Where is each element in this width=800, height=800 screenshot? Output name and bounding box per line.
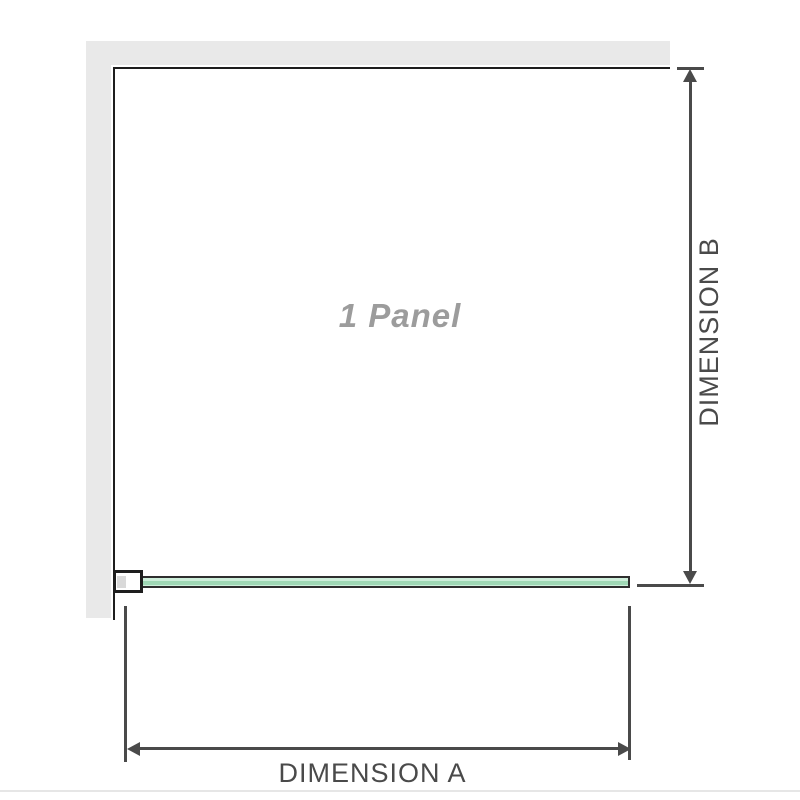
dimension-b-line bbox=[689, 74, 692, 579]
bottom-separator-line bbox=[0, 790, 800, 792]
wall-left bbox=[86, 41, 111, 618]
dimension-b-tick-bottom bbox=[637, 584, 704, 587]
dimension-b-label: DIMENSION B bbox=[695, 217, 723, 447]
panel-count-label: 1 Panel bbox=[290, 297, 510, 335]
dimension-a-label: DIMENSION A bbox=[210, 758, 535, 789]
dimension-diagram: 1 Panel DIMENSION B DIMENSION A bbox=[0, 0, 800, 800]
arrowhead-right-icon bbox=[618, 742, 631, 756]
wall-top bbox=[86, 41, 670, 65]
dimension-a-extension-left bbox=[124, 606, 127, 762]
wall-top-edge-line bbox=[113, 67, 670, 69]
glass-panel bbox=[123, 576, 630, 588]
wall-left-edge-line bbox=[113, 67, 115, 620]
arrowhead-left-icon bbox=[127, 742, 140, 756]
glass-panel-stripe bbox=[125, 581, 628, 585]
arrowhead-up-icon bbox=[683, 69, 697, 82]
arrowhead-down-icon bbox=[683, 571, 697, 584]
dimension-a-extension-right bbox=[628, 606, 631, 760]
dimension-a-line bbox=[134, 747, 626, 750]
wall-bracket-insert bbox=[117, 576, 126, 588]
